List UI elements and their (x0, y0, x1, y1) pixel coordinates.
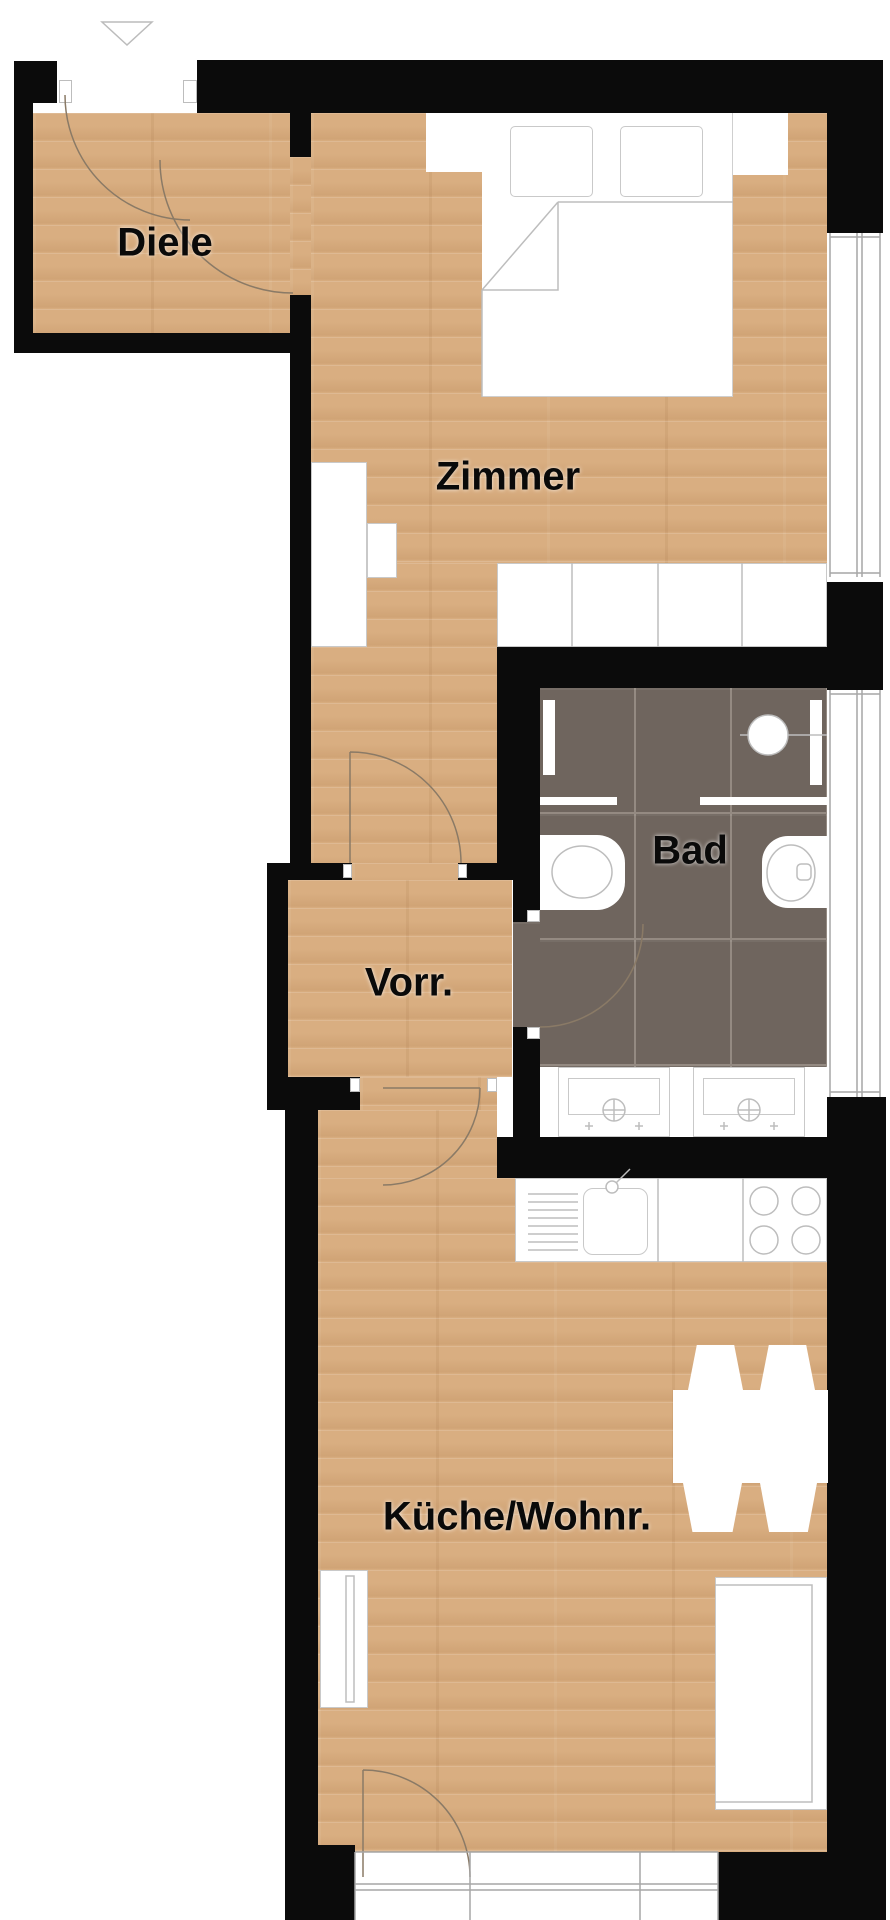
floor-plan: Diele Zimmer Bad Vorr. Küche/Wohnr. (0, 0, 890, 1920)
room-label-diele: Diele (117, 221, 213, 266)
burner-icon (750, 1226, 778, 1254)
wardrobe-dividers (572, 563, 742, 647)
burner-icon (750, 1187, 778, 1215)
burner-icon (792, 1187, 820, 1215)
bad-door-arc (540, 924, 643, 1027)
vorraum-kueche-door-arc (383, 1088, 480, 1185)
shower-head-icon (748, 715, 788, 755)
burner-icon (792, 1226, 820, 1254)
room-label-zimmer: Zimmer (436, 455, 581, 500)
radiator-fins (346, 1576, 354, 1702)
sofa-seat-outline (715, 1585, 812, 1802)
washbasin-bowl (552, 846, 612, 898)
room-label-vorraum: Vorr. (365, 961, 453, 1006)
room-label-bad: Bad (652, 829, 728, 874)
entrance-door-arc (65, 95, 190, 220)
window-glazing-bad (830, 690, 880, 1097)
dryer-controls (720, 1099, 778, 1130)
room-label-kueche-wohnraum: Küche/Wohnr. (383, 1495, 651, 1540)
sink-drainer-lines (528, 1194, 578, 1250)
toilet-bowl (767, 845, 815, 901)
window-glazing-zimmer (830, 233, 880, 577)
toilet-flush-detail (797, 864, 811, 880)
bed-blanket-fold (482, 202, 733, 397)
counter-dividers (658, 1178, 743, 1262)
corridor-vorraum-door-arc (350, 752, 461, 863)
entrance-arrow-icon (102, 22, 152, 45)
window-glazing-balcony (355, 1852, 718, 1920)
balcony-door-arc (363, 1770, 470, 1877)
washing-machine-controls (585, 1099, 643, 1130)
faucet-lever (616, 1169, 630, 1183)
